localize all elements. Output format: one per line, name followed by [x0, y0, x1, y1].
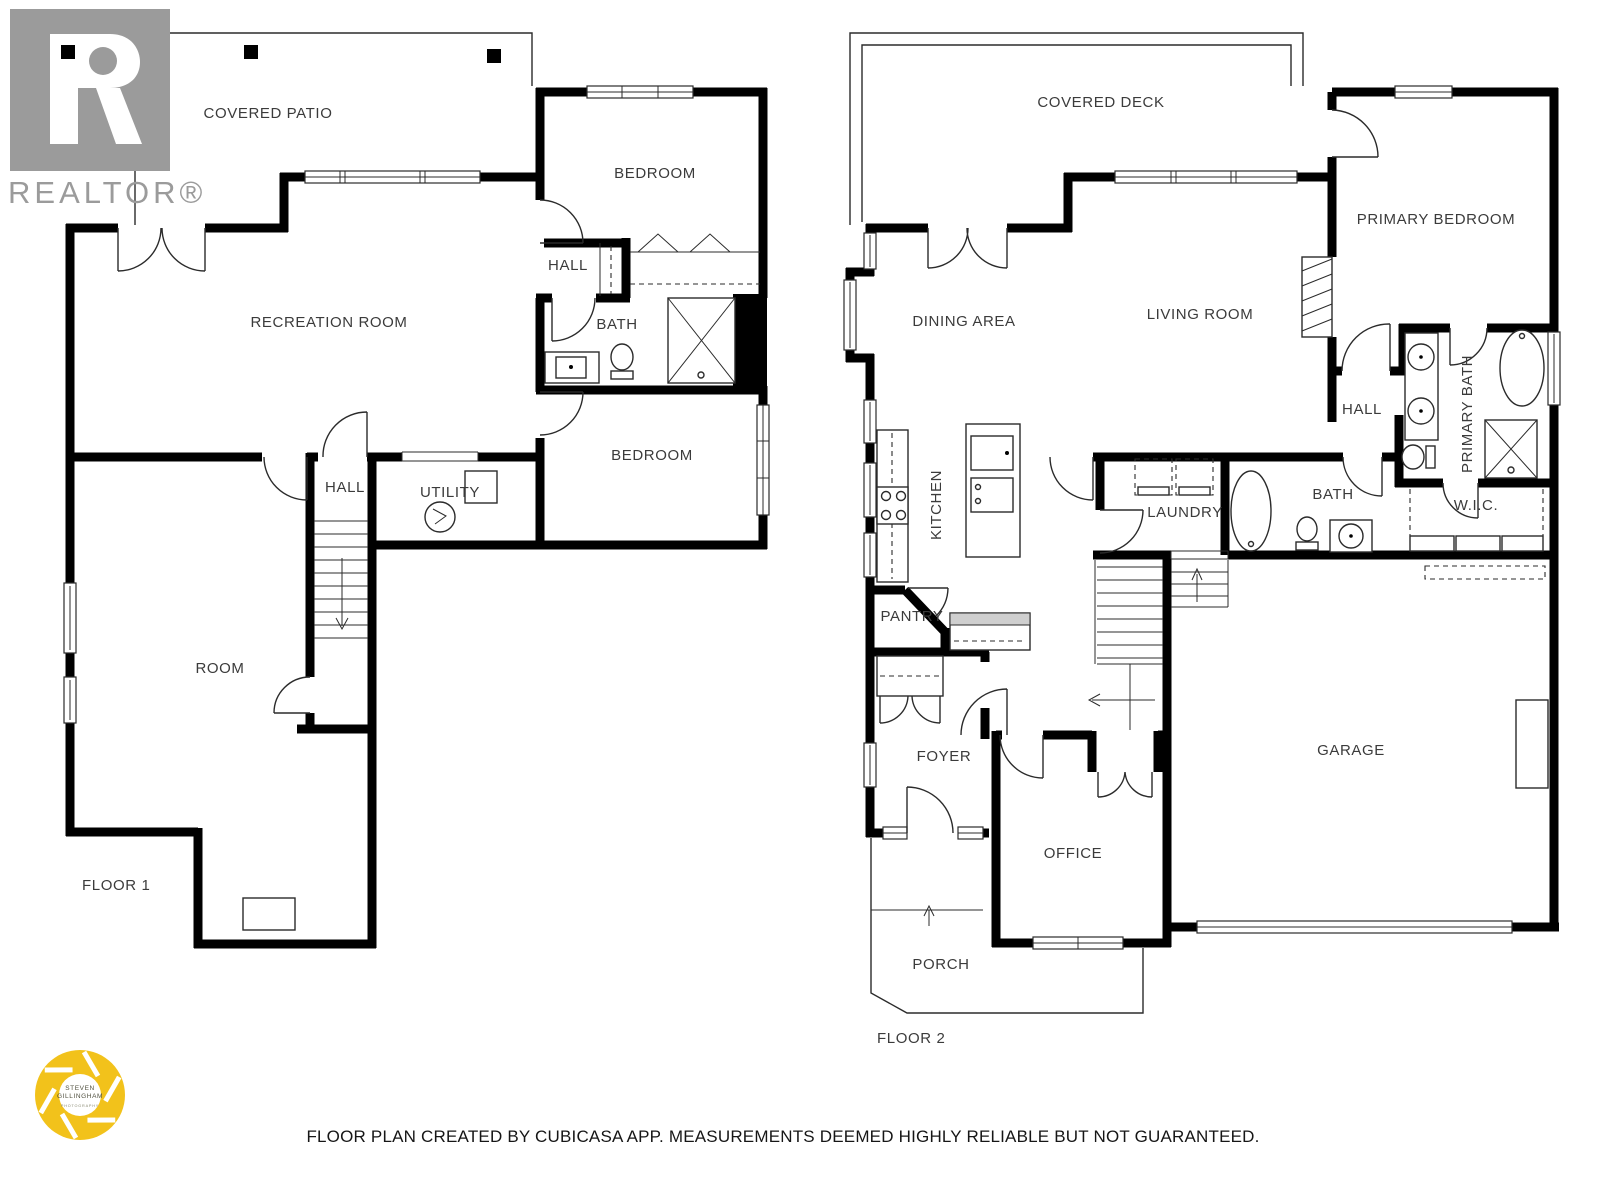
porch-outline: [871, 838, 1143, 1013]
staircase-up: [1089, 560, 1163, 730]
floor-plan-canvas: COVERED PATIO RECREATION ROOM BEDROOM HA…: [0, 0, 1600, 1200]
disclaimer-text: FLOOR PLAN CREATED BY CUBICASA APP. MEAS…: [306, 1127, 1259, 1146]
garage-fixtures: [1425, 566, 1548, 788]
photographer-name-line3: PHOTOGRAPHY: [61, 1104, 99, 1108]
room-label-covered-deck: COVERED DECK: [1037, 94, 1164, 111]
photographer-logo: STEVEN GILLINGHAM PHOTOGRAPHY: [34, 1050, 126, 1140]
deck-outline: [850, 33, 1303, 225]
photographer-name-line2: GILLINGHAM: [57, 1093, 103, 1100]
bathtub-icon: [1231, 471, 1271, 551]
room-label-living-room: LIVING ROOM: [1147, 306, 1254, 323]
water-heater-icon: [425, 502, 455, 532]
room-label-covered-patio: COVERED PATIO: [204, 105, 333, 122]
room-label-primary-bath: PRIMARY BATH: [1459, 355, 1476, 473]
floor1-title: FLOOR 1: [82, 877, 150, 894]
toilet-icon: [1297, 517, 1317, 541]
room-label-hall-lower: HALL: [325, 479, 365, 496]
staircase-down: [314, 521, 368, 638]
room-label-kitchen: KITCHEN: [928, 470, 945, 540]
floor2-bath-fixtures: [1231, 471, 1372, 552]
room-label-bath-floor1: BATH: [596, 316, 637, 333]
room-label-dining-area: DINING AREA: [912, 313, 1015, 330]
room-label-laundry: LAUNDRY: [1147, 504, 1223, 521]
realtor-logo-icon: [10, 9, 170, 171]
laundry-fixtures: [1135, 459, 1213, 495]
room-label-primary-bedroom: PRIMARY BEDROOM: [1357, 211, 1515, 228]
floor2-title: FLOOR 2: [877, 1030, 945, 1047]
patio-post: [244, 45, 258, 59]
utility-fixtures: [425, 471, 497, 532]
room-label-wic: W.I.C.: [1454, 497, 1498, 514]
floor1-walls: [66, 88, 767, 948]
toilet-icon: [611, 344, 633, 370]
floor1-bath-fixtures: [545, 298, 735, 383]
room-label-pantry: PANTRY: [880, 608, 943, 625]
room-label-foyer: FOYER: [917, 748, 972, 765]
floor2-plan: COVERED DECK DINING AREA LIVING ROOM PRI…: [844, 33, 1560, 1047]
fireplace-icon: [243, 898, 295, 930]
room-label-office: OFFICE: [1044, 845, 1103, 862]
garage-steps: [1171, 560, 1228, 607]
garage-utility-icon: [1516, 700, 1548, 788]
chimney-mass: [733, 294, 767, 388]
room-label-hall-floor2: HALL: [1342, 401, 1382, 418]
toilet-icon: [1402, 445, 1424, 469]
realtor-logo: REALTOR®: [8, 9, 206, 210]
fireplace-icon: [1302, 257, 1332, 337]
room-label-bedroom-lower: BEDROOM: [611, 447, 693, 464]
bathtub-icon: [1500, 330, 1544, 406]
room-label-bath-floor2: BATH: [1312, 486, 1353, 503]
room-label-hall-upper: HALL: [548, 257, 588, 274]
photographer-name-line1: STEVEN: [65, 1085, 95, 1092]
kitchen-fixtures: [877, 424, 1020, 582]
realtor-wordmark: REALTOR®: [8, 175, 206, 210]
room-label-utility: UTILITY: [420, 484, 480, 501]
room-label-room: ROOM: [195, 660, 244, 677]
room-label-porch: PORCH: [912, 956, 969, 973]
patio-post: [487, 49, 501, 63]
room-label-bedroom-upper: BEDROOM: [614, 165, 696, 182]
room-label-garage: GARAGE: [1317, 742, 1385, 759]
room-label-recreation-room: RECREATION ROOM: [250, 314, 407, 331]
